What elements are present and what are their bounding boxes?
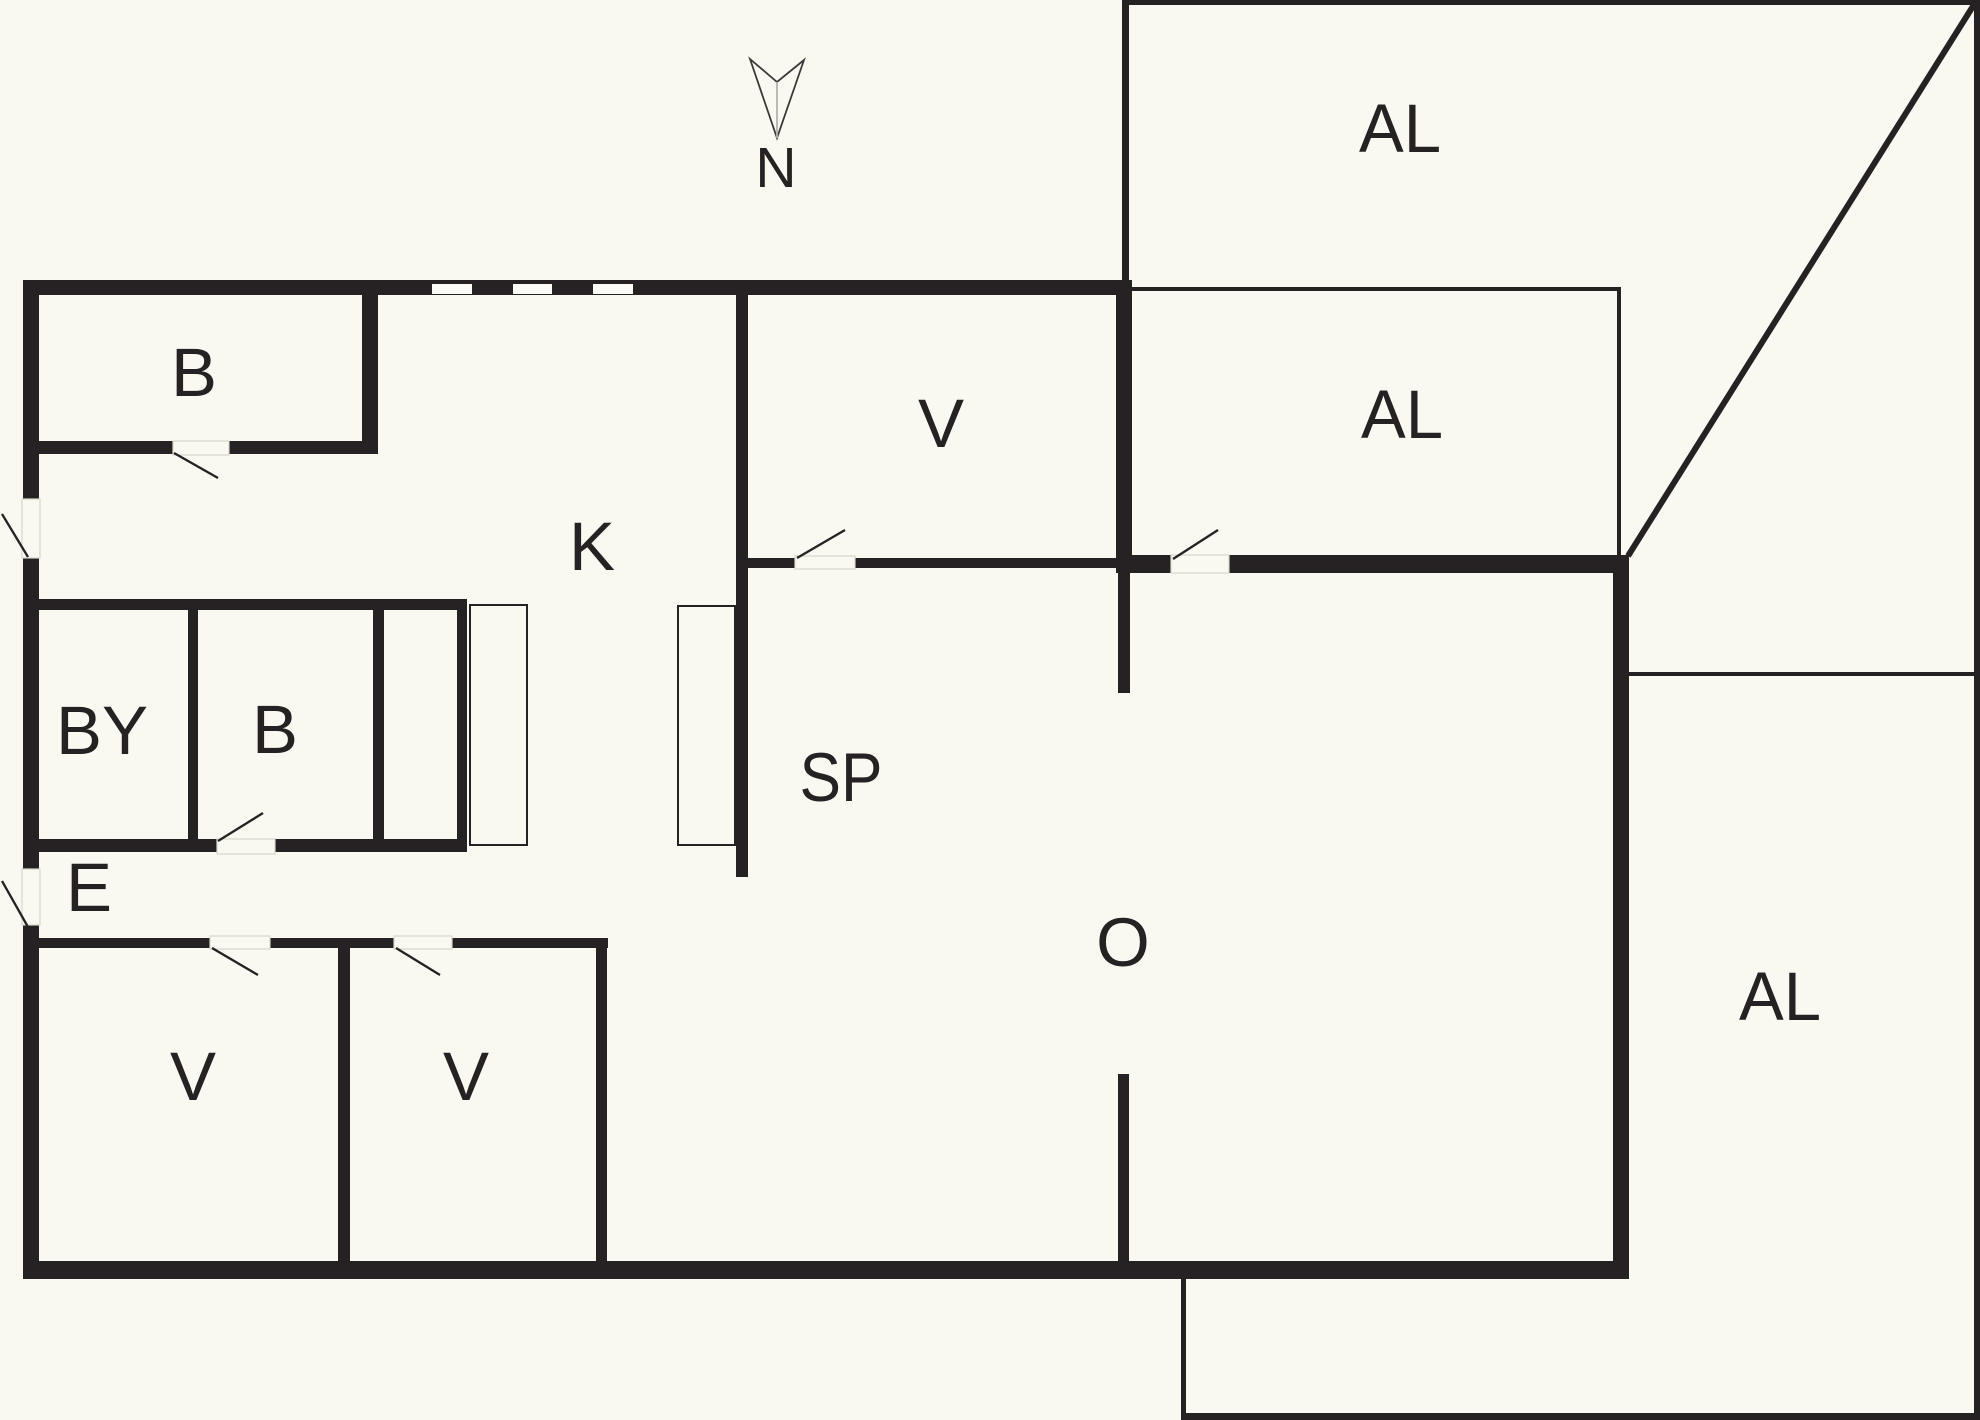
svg-text:AL: AL [1361, 376, 1443, 453]
svg-text:K: K [569, 508, 615, 585]
svg-text:E: E [66, 849, 112, 926]
svg-text:V: V [918, 385, 964, 462]
svg-text:O: O [1096, 904, 1150, 981]
svg-text:V: V [170, 1038, 216, 1115]
svg-text:AL: AL [1739, 958, 1821, 1035]
svg-text:BY: BY [56, 692, 148, 769]
svg-text:B: B [252, 691, 298, 768]
svg-text:N: N [755, 136, 796, 200]
svg-text:AL: AL [1359, 90, 1441, 167]
svg-text:B: B [171, 334, 217, 411]
svg-text:V: V [443, 1038, 489, 1115]
svg-text:SP: SP [800, 739, 883, 816]
